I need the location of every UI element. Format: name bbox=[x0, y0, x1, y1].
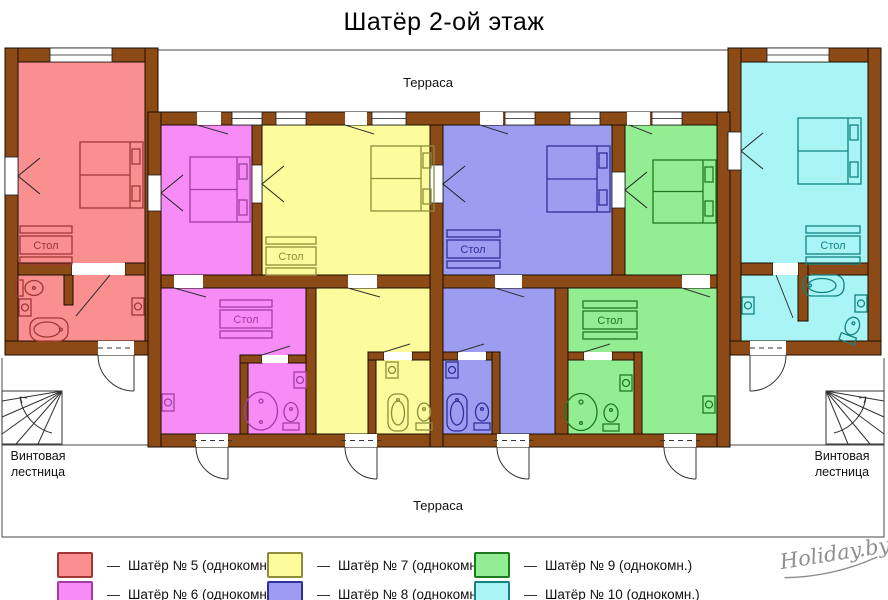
room8-table-label: Стол bbox=[460, 244, 485, 256]
legend-item-room10: — Шатёр № 10 (однокомн.) bbox=[474, 581, 700, 600]
legend-swatch-room7 bbox=[267, 552, 303, 578]
legend-dash: — bbox=[317, 558, 330, 573]
stairs-right-label-line2: лестница bbox=[815, 465, 869, 479]
legend-swatch-room9 bbox=[474, 552, 510, 578]
legend-item-room8: — Шатёр № 8 (однокомн.) bbox=[267, 581, 485, 600]
stairs-right-label-line1: Винтовая bbox=[815, 449, 870, 463]
legend-dash: — bbox=[524, 558, 537, 573]
legend-dash: — bbox=[524, 587, 537, 600]
legend-swatch-room8 bbox=[267, 581, 303, 600]
room7-table-label: Стол bbox=[278, 251, 303, 263]
floor-plan: Терраса Терраса Винтовая лестница Винтов… bbox=[0, 0, 888, 600]
stairs-left-label-line1: Винтовая bbox=[11, 449, 66, 463]
room9-table-label: Стол bbox=[597, 315, 622, 327]
room5-table-label: Стол bbox=[33, 240, 58, 252]
legend-item-room9: — Шатёр № 9 (однокомн.) bbox=[474, 552, 692, 578]
legend-swatch-room6 bbox=[57, 581, 93, 600]
legend-swatch-room5 bbox=[57, 552, 93, 578]
legend-label-room8: Шатёр № 8 (однокомн.) bbox=[338, 587, 485, 600]
legend-label-room6: Шатёр № 6 (однокомн.) bbox=[128, 587, 275, 600]
legend-label-room10: Шатёр № 10 (однокомн.) bbox=[545, 587, 700, 600]
terrace-top-label: Терраса bbox=[403, 75, 454, 90]
legend-swatch-room10 bbox=[474, 581, 510, 600]
legend-item-room6: — Шатёр № 6 (однокомн.) bbox=[57, 581, 275, 600]
room5-area bbox=[18, 62, 145, 342]
room6-table-label: Стол bbox=[233, 314, 258, 326]
legend-label-room7: Шатёр № 7 (однокомн.) bbox=[338, 558, 485, 573]
legend-dash: — bbox=[107, 587, 120, 600]
legend-dash: — bbox=[317, 587, 330, 600]
legend-item-room5: — Шатёр № 5 (однокомн.) bbox=[57, 552, 275, 578]
spiral-staircase-left bbox=[2, 391, 62, 444]
legend-dash: — bbox=[107, 558, 120, 573]
legend-item-room7: — Шатёр № 7 (однокомн.) bbox=[267, 552, 485, 578]
terrace-bottom-label: Терраса bbox=[413, 498, 464, 513]
spiral-staircase-right bbox=[826, 391, 884, 444]
legend-label-room9: Шатёр № 9 (однокомн.) bbox=[545, 558, 692, 573]
room10-table-label: Стол bbox=[820, 240, 845, 252]
legend-label-room5: Шатёр № 5 (однокомн.) bbox=[128, 558, 275, 573]
stairs-left-label-line2: лестница bbox=[11, 465, 65, 479]
floor-plan-page: Шатёр 2-ой этаж bbox=[0, 0, 888, 600]
